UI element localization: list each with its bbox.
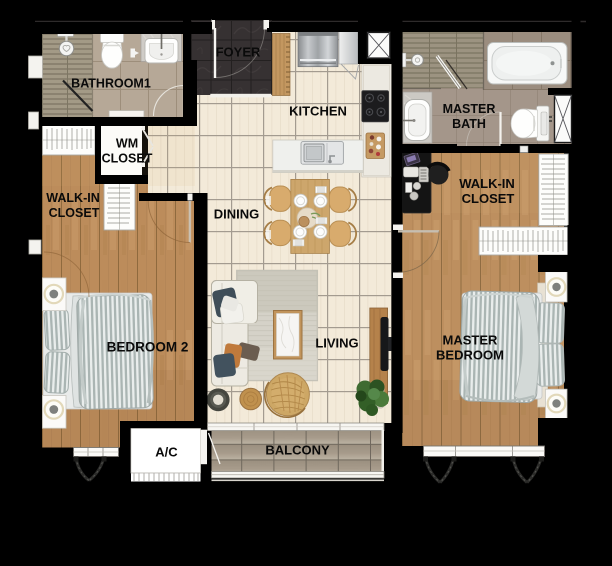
svg-text:LIVING: LIVING <box>315 336 358 351</box>
svg-text:CLOSET: CLOSET <box>49 206 100 220</box>
svg-text:DINING: DINING <box>214 207 260 222</box>
svg-text:KITCHEN: KITCHEN <box>289 104 347 119</box>
svg-text:BEDROOM 2: BEDROOM 2 <box>107 340 189 355</box>
svg-text:WALK-IN: WALK-IN <box>46 191 99 205</box>
svg-text:WALK-IN: WALK-IN <box>459 176 515 191</box>
svg-text:FOYER: FOYER <box>216 45 261 60</box>
svg-text:BATH: BATH <box>452 117 486 131</box>
svg-text:BALCONY: BALCONY <box>265 443 330 458</box>
svg-text:CLOSET: CLOSET <box>462 191 515 206</box>
svg-text:CLOSET: CLOSET <box>102 152 153 166</box>
svg-text:A/C: A/C <box>155 445 178 460</box>
svg-text:BATHROOM1: BATHROOM1 <box>71 77 151 91</box>
svg-text:WM: WM <box>116 137 138 151</box>
svg-text:MASTER: MASTER <box>443 333 499 348</box>
svg-text:BEDROOM: BEDROOM <box>436 348 504 363</box>
svg-text:MASTER: MASTER <box>443 102 496 116</box>
